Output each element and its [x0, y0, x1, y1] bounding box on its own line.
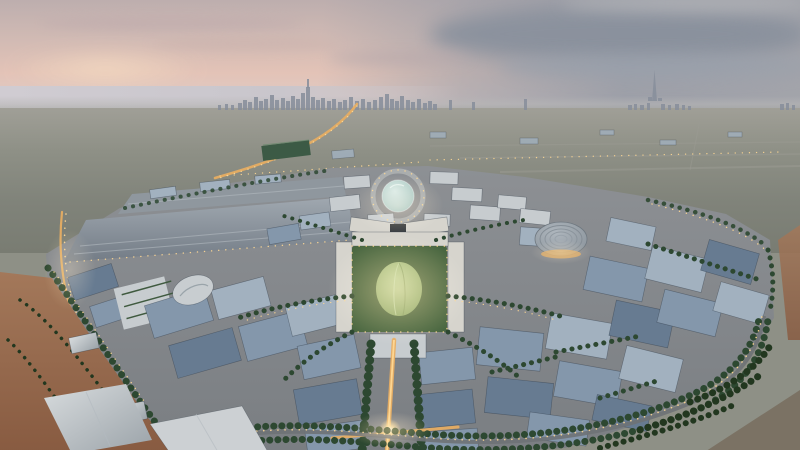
roof-block [476, 327, 544, 371]
tall-spire-tower [648, 70, 662, 101]
roof-block [484, 377, 553, 420]
roof-block [452, 187, 483, 202]
roof-block [497, 195, 526, 210]
roof-block [470, 205, 501, 221]
lit-highway [215, 104, 357, 178]
green-roof-building [261, 140, 310, 161]
roof-block [430, 172, 458, 185]
roof-block [418, 347, 475, 384]
aerial-render [0, 0, 800, 450]
scene-svg [0, 0, 800, 450]
city-skyline [218, 70, 795, 110]
midground-details [215, 104, 800, 179]
roof-block [519, 208, 550, 225]
